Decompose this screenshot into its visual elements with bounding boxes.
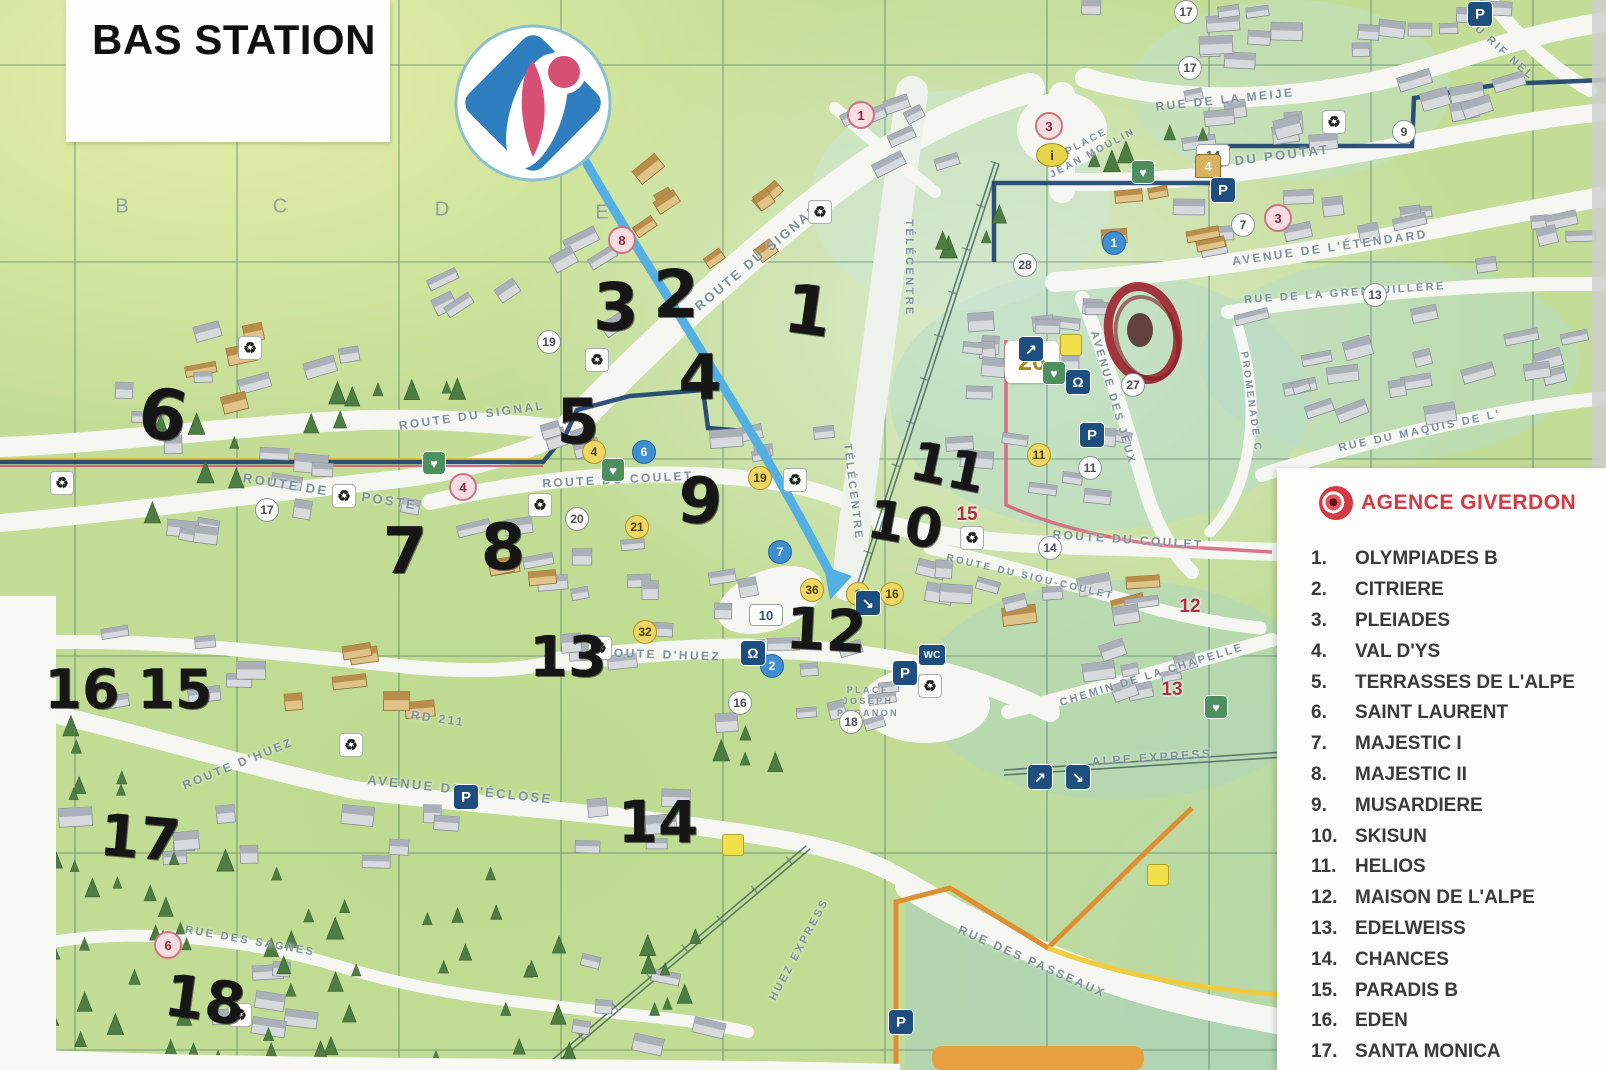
legend-item: 9.MUSARDIERE xyxy=(1311,790,1606,821)
map-badge: 28 xyxy=(1013,253,1037,277)
map-badge: 3 xyxy=(1264,204,1292,232)
legend-item: 13.EDELWEISS xyxy=(1311,914,1606,945)
lift-icon: ↗ xyxy=(1018,336,1044,362)
recycle-icon: ♻ xyxy=(918,674,942,698)
map-badge: 13 xyxy=(1161,679,1182,701)
legend-item: 1.OLYMPIADES B xyxy=(1311,544,1606,575)
map-badge: 1 xyxy=(847,101,875,129)
map-badge: 10 xyxy=(749,604,783,626)
map-badge: 11 xyxy=(1027,443,1051,467)
handwritten-number: 4 xyxy=(678,347,721,409)
map-badge: 4 xyxy=(449,473,477,501)
legend-item: 12.MAISON DE L'ALPE xyxy=(1311,883,1606,914)
heart-icon: ♥ xyxy=(601,458,625,482)
legend-item: 3.PLEIADES xyxy=(1311,606,1606,637)
lift-icon: ↘ xyxy=(1065,764,1091,790)
map-badge: 21 xyxy=(625,515,649,539)
legend-item: 15.PARADIS B xyxy=(1311,975,1606,1006)
legend-item: 5.TERRASSES DE L'ALPE xyxy=(1311,667,1606,698)
ysq-icon xyxy=(1147,864,1169,886)
park-icon: P xyxy=(892,660,918,686)
legend-item: 17.SANTA MONICA xyxy=(1311,1037,1606,1068)
recycle-icon: ♻ xyxy=(238,336,262,360)
plug-icon: Ω xyxy=(740,640,766,666)
recycle-icon: ♻ xyxy=(332,484,356,508)
legend-title: AGENCE GIVERDON xyxy=(1361,491,1576,515)
legend-item: 11.HELIOS xyxy=(1311,852,1606,883)
heart-icon: ♥ xyxy=(422,451,446,475)
map-badge: 6 xyxy=(154,931,182,959)
heart-icon: ♥ xyxy=(1131,160,1155,184)
handwritten-number: 1 xyxy=(780,275,836,349)
legend-item: 7.MAJESTIC I xyxy=(1311,729,1606,760)
handwritten-number: 3 xyxy=(593,275,639,341)
grid-letter: C xyxy=(273,196,287,219)
handwritten-number: 12 xyxy=(784,599,868,661)
map-badge: 1 xyxy=(1102,231,1126,255)
lift-icon: ↗ xyxy=(1027,764,1053,790)
legend-item: 6.SAINT LAURENT xyxy=(1311,698,1606,729)
map-badge: 18 xyxy=(839,710,863,734)
map-title: BAS STATION xyxy=(92,16,376,64)
street-label: TÉLÉCENTRE xyxy=(901,219,915,316)
legend-header: AGENCE GIVERDON xyxy=(1319,486,1606,520)
map-badge: 11 xyxy=(1078,456,1102,480)
legend-item: 2.CITRIERE xyxy=(1311,575,1606,606)
handwritten-number: 9 xyxy=(675,468,725,536)
wc-icon: WC xyxy=(918,644,946,666)
recycle-icon: ♻ xyxy=(1322,110,1346,134)
handwritten-number: 13 xyxy=(529,630,607,686)
handwritten-number: 11 xyxy=(906,434,991,502)
map-badge: 12 xyxy=(1179,596,1200,618)
recycle-icon: ♻ xyxy=(585,348,609,372)
handwritten-number: 5 xyxy=(556,391,599,453)
map-badge: 8 xyxy=(608,226,636,254)
map-badge: 14 xyxy=(1038,536,1062,560)
handwritten-number: 8 xyxy=(481,516,526,580)
park-icon: P xyxy=(453,784,479,810)
map-badge: 17 xyxy=(1178,56,1202,80)
recycle-icon: ♻ xyxy=(339,733,363,757)
park-icon: P xyxy=(1079,422,1105,448)
map-badge: 16 xyxy=(880,582,904,606)
resort-map-canvas: BCDE ROUTE DU SIGNALROUTE DU SIGNALROUTE… xyxy=(0,0,1606,1070)
ysq-icon xyxy=(722,834,744,856)
grid-letter: E xyxy=(595,202,608,225)
park-icon: P xyxy=(888,1009,914,1035)
map-badge: 15 xyxy=(956,504,977,526)
map-badge: 9 xyxy=(1392,120,1416,144)
handwritten-number: 16 xyxy=(44,663,119,717)
info-icon: i xyxy=(1036,143,1068,167)
map-title-box: BAS STATION xyxy=(66,0,390,142)
legend-item: 10.SKISUN xyxy=(1311,821,1606,852)
plug-icon: Ω xyxy=(1065,369,1091,395)
handwritten-number: 15 xyxy=(137,663,212,717)
handwritten-number: 18 xyxy=(161,966,249,1035)
recycle-icon: ♻ xyxy=(960,526,984,550)
handwritten-number: 17 xyxy=(97,806,182,871)
map-badge: 6 xyxy=(632,440,656,464)
legend-item: 8.MAJESTIC II xyxy=(1311,760,1606,791)
park-icon: P xyxy=(1467,1,1493,27)
legend-item: 4.VAL D'YS xyxy=(1311,636,1606,667)
recycle-icon: ♻ xyxy=(528,493,552,517)
handwritten-number: 2 xyxy=(653,262,699,328)
map-badge: 13 xyxy=(1363,283,1387,307)
map-badge: 20 xyxy=(565,507,589,531)
recycle-icon: ♻ xyxy=(808,200,832,224)
recycle-icon: ♻ xyxy=(783,468,807,492)
agence-giverdon-logo-icon xyxy=(1319,486,1353,520)
handwritten-number: 14 xyxy=(618,793,699,851)
handwritten-number: 10 xyxy=(863,492,946,558)
legend-item: 16.EDEN xyxy=(1311,1006,1606,1037)
grid-letter: B xyxy=(115,196,128,219)
map-badge: 17 xyxy=(255,498,279,522)
resort-logo xyxy=(456,26,610,180)
legend-panel: AGENCE GIVERDON 1.OLYMPIADES B2.CITRIERE… xyxy=(1277,468,1606,1070)
ysq-icon xyxy=(1060,334,1082,356)
grid-letter: D xyxy=(435,199,449,222)
map-badge: 19 xyxy=(537,330,561,354)
map-badge: 3 xyxy=(1035,112,1063,140)
map-badge: 4 xyxy=(1195,154,1221,178)
map-badge: 19 xyxy=(748,466,772,490)
handwritten-number: 7 xyxy=(383,520,428,584)
legend-item: 14.CHANCES xyxy=(1311,944,1606,975)
map-badge: 17 xyxy=(1174,0,1198,24)
map-badge: 27 xyxy=(1121,373,1145,397)
heart-icon: ♥ xyxy=(1042,361,1066,385)
heart-icon: ♥ xyxy=(1204,695,1228,719)
park-icon: P xyxy=(1210,177,1236,203)
recycle-icon: ♻ xyxy=(50,471,74,495)
map-badge: 16 xyxy=(728,691,752,715)
map-badge: 7 xyxy=(768,540,792,564)
legend-list: 1.OLYMPIADES B2.CITRIERE3.PLEIADES4.VAL … xyxy=(1277,544,1606,1068)
map-badge: 7 xyxy=(1231,213,1255,237)
map-badge: 32 xyxy=(633,620,657,644)
